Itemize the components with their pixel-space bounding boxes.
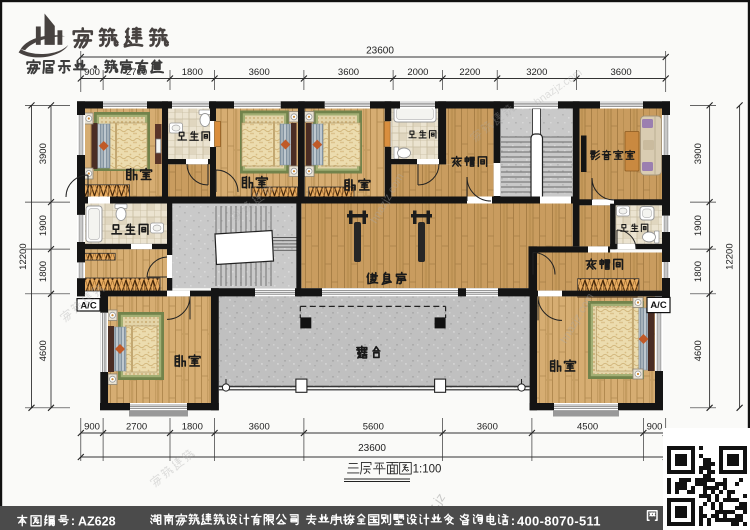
svg-text:AZ628: AZ628 — [78, 515, 116, 529]
svg-text:1:100: 1:100 — [413, 464, 442, 476]
svg-text:1800: 1800 — [182, 422, 203, 433]
svg-text:2700: 2700 — [126, 422, 147, 433]
svg-text:2200: 2200 — [459, 67, 480, 78]
svg-text:1800: 1800 — [182, 67, 203, 78]
svg-text:2000: 2000 — [407, 67, 428, 78]
svg-text:4500: 4500 — [577, 422, 598, 433]
svg-text:23600: 23600 — [358, 443, 386, 454]
svg-text:3900: 3900 — [38, 143, 49, 164]
svg-text::: : — [71, 514, 75, 528]
svg-text:3600: 3600 — [249, 67, 270, 78]
svg-text:1800: 1800 — [693, 261, 704, 282]
svg-text:3600: 3600 — [611, 67, 632, 78]
svg-text:4600: 4600 — [38, 340, 49, 361]
svg-text:900: 900 — [84, 422, 100, 433]
svg-text:3900: 3900 — [693, 143, 704, 164]
svg-text:3600: 3600 — [477, 422, 498, 433]
svg-text:3200: 3200 — [526, 67, 547, 78]
svg-text:1900: 1900 — [38, 215, 49, 236]
svg-text:4600: 4600 — [693, 340, 704, 361]
svg-text:3600: 3600 — [338, 67, 359, 78]
svg-text:900: 900 — [647, 422, 663, 433]
svg-text:12200: 12200 — [725, 243, 736, 269]
svg-text:1800: 1800 — [38, 261, 49, 282]
svg-text:12200: 12200 — [18, 243, 29, 269]
svg-text::: : — [511, 514, 515, 528]
svg-text:23600: 23600 — [366, 46, 394, 57]
svg-text:5600: 5600 — [363, 422, 384, 433]
svg-text:3600: 3600 — [249, 422, 270, 433]
svg-text:1900: 1900 — [693, 215, 704, 236]
svg-text:400-8070-511: 400-8070-511 — [517, 514, 601, 529]
svg-text:A/C: A/C — [650, 300, 667, 311]
